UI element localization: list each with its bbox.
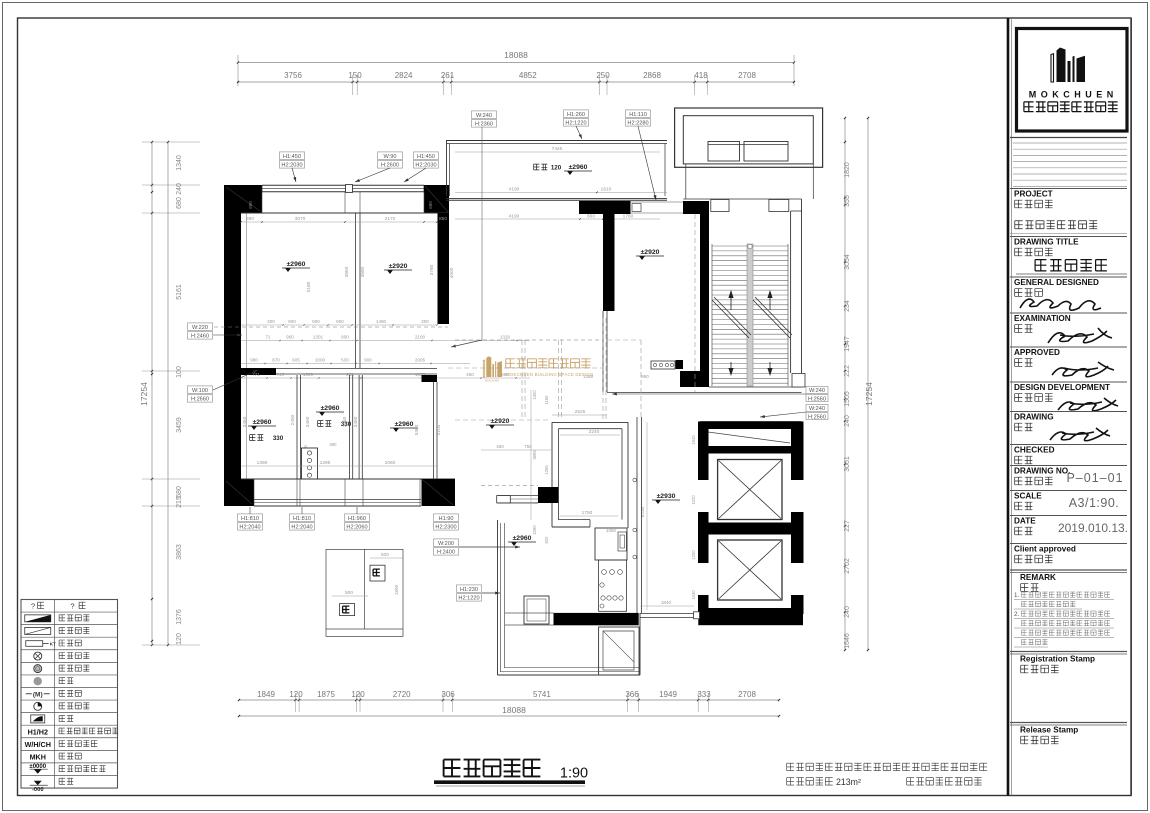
svg-text:2702: 2702 xyxy=(844,558,851,574)
svg-text:1505: 1505 xyxy=(844,391,851,407)
svg-text:PROJECT: PROJECT xyxy=(1014,190,1053,199)
svg-text:H1:110: H1:110 xyxy=(629,112,647,118)
svg-text:GENERAL DESIGNED: GENERAL DESIGNED xyxy=(1014,278,1099,287)
svg-text:1320: 1320 xyxy=(500,335,511,340)
svg-text:71: 71 xyxy=(265,335,271,340)
svg-text:234: 234 xyxy=(844,300,851,312)
svg-text:2824: 2824 xyxy=(395,71,413,80)
svg-text:2450: 2450 xyxy=(290,414,296,425)
svg-text:240: 240 xyxy=(176,183,183,195)
svg-text:REMARK: REMARK xyxy=(1020,573,1056,582)
svg-text:±2930: ±2930 xyxy=(657,493,676,500)
svg-text:1.: 1. xyxy=(1014,592,1019,599)
svg-text:±2960: ±2960 xyxy=(569,164,588,171)
svg-text:1301: 1301 xyxy=(313,335,324,340)
svg-text:H1:810: H1:810 xyxy=(293,516,311,522)
svg-text:-000: -000 xyxy=(32,787,44,793)
svg-text:±2920: ±2920 xyxy=(389,263,408,270)
svg-text:1646: 1646 xyxy=(844,633,851,649)
svg-text:±2920: ±2920 xyxy=(641,249,660,256)
svg-text:H1:260: H1:260 xyxy=(567,112,585,118)
svg-text:18088: 18088 xyxy=(504,50,528,60)
svg-text:H:2360: H:2360 xyxy=(475,121,493,127)
svg-text:1750: 1750 xyxy=(582,510,593,516)
svg-text:120: 120 xyxy=(351,690,365,699)
svg-text:MOKCHUEN: MOKCHUEN xyxy=(485,380,499,383)
svg-text:H1:90: H1:90 xyxy=(439,516,454,522)
svg-text:850: 850 xyxy=(439,216,447,222)
svg-text:450: 450 xyxy=(466,372,474,377)
svg-text:900: 900 xyxy=(312,319,320,324)
svg-text:1820: 1820 xyxy=(844,162,851,178)
svg-text:250: 250 xyxy=(596,71,610,80)
svg-text:1949: 1949 xyxy=(659,690,677,699)
svg-text:H1:230: H1:230 xyxy=(460,587,478,593)
svg-text:3459: 3459 xyxy=(176,417,183,433)
svg-text:2005: 2005 xyxy=(415,358,426,363)
svg-text:±2960: ±2960 xyxy=(395,421,414,428)
svg-text:±2960: ±2960 xyxy=(287,261,306,268)
svg-text:222: 222 xyxy=(844,365,851,377)
svg-text:460: 460 xyxy=(496,444,504,449)
svg-text:2170: 2170 xyxy=(385,216,396,222)
svg-text:227: 227 xyxy=(844,520,851,532)
svg-text:3054: 3054 xyxy=(844,254,851,270)
svg-text:2868: 2868 xyxy=(643,71,661,80)
svg-text:H2:2060: H2:2060 xyxy=(346,524,367,530)
svg-text:150: 150 xyxy=(348,71,362,80)
svg-text:1340: 1340 xyxy=(176,155,183,171)
svg-text:DESIGN DEVELOPMENT: DESIGN DEVELOPMENT xyxy=(1014,383,1110,392)
svg-text:5360: 5360 xyxy=(414,424,420,435)
svg-text:1840: 1840 xyxy=(661,600,672,605)
svg-text:W:200: W:200 xyxy=(438,541,454,547)
svg-text:1376: 1376 xyxy=(176,609,183,625)
svg-text:H:2460: H:2460 xyxy=(191,333,209,339)
svg-text:120: 120 xyxy=(176,633,183,645)
svg-text:1300: 1300 xyxy=(532,390,537,400)
svg-text:CHECKED: CHECKED xyxy=(1014,446,1055,455)
svg-text:W:90: W:90 xyxy=(384,154,397,160)
svg-text:MOKCHUEN BUILDING SPACE DESIGN: MOKCHUEN BUILDING SPACE DESIGN xyxy=(506,372,593,377)
svg-text:±2960: ±2960 xyxy=(253,419,272,426)
svg-text:745: 745 xyxy=(276,372,284,377)
svg-text:Client approved: Client approved xyxy=(1014,545,1076,554)
svg-text:W:100: W:100 xyxy=(192,388,208,394)
svg-text:1030: 1030 xyxy=(691,590,696,600)
svg-text:680: 680 xyxy=(428,201,433,209)
svg-text:100: 100 xyxy=(176,366,183,378)
svg-text:2240: 2240 xyxy=(589,429,600,435)
svg-text:215: 215 xyxy=(176,496,183,508)
svg-text:120: 120 xyxy=(289,690,303,699)
svg-text:605: 605 xyxy=(292,358,300,363)
svg-text:1760: 1760 xyxy=(623,213,634,219)
svg-text:1020: 1020 xyxy=(691,495,696,505)
svg-text:240: 240 xyxy=(844,415,851,427)
svg-text:H2:2280: H2:2280 xyxy=(627,120,648,126)
svg-text:3460: 3460 xyxy=(342,416,348,427)
svg-text:A3/1:90.: A3/1:90. xyxy=(1069,496,1120,510)
svg-text:W:220: W:220 xyxy=(192,325,208,331)
svg-text:H:2560: H:2560 xyxy=(808,414,826,420)
svg-text:333: 333 xyxy=(697,690,711,699)
svg-text:MKH: MKH xyxy=(30,752,46,761)
svg-text:4190: 4190 xyxy=(509,213,520,219)
svg-text:H2:1220: H2:1220 xyxy=(565,120,586,126)
svg-text:H2:2040: H2:2040 xyxy=(291,524,312,530)
svg-text:W:240: W:240 xyxy=(809,388,825,394)
svg-text:H1:960: H1:960 xyxy=(348,516,366,522)
svg-text:1160: 1160 xyxy=(544,395,549,405)
svg-text:1947: 1947 xyxy=(844,336,851,352)
svg-text:530: 530 xyxy=(341,358,349,363)
svg-text:3680: 3680 xyxy=(360,266,366,277)
svg-text:2720: 2720 xyxy=(393,690,411,699)
svg-text:300: 300 xyxy=(421,319,429,324)
svg-text:H1:810: H1:810 xyxy=(241,516,259,522)
svg-text:900: 900 xyxy=(341,335,349,340)
svg-text:5161: 5161 xyxy=(176,284,183,300)
svg-text:3863: 3863 xyxy=(176,544,183,560)
svg-text:3895: 3895 xyxy=(532,450,537,460)
svg-text:SCALE: SCALE xyxy=(1014,492,1042,501)
svg-text:690: 690 xyxy=(246,216,254,222)
svg-text:240: 240 xyxy=(844,606,851,618)
svg-text:900: 900 xyxy=(286,335,294,340)
svg-text:1500: 1500 xyxy=(303,372,314,377)
svg-text:4000: 4000 xyxy=(449,267,455,278)
svg-text:1200: 1200 xyxy=(691,550,696,560)
svg-text:17254: 17254 xyxy=(864,382,874,406)
svg-text:660: 660 xyxy=(587,213,595,219)
svg-text:1600: 1600 xyxy=(394,584,399,595)
svg-text:H1:450: H1:450 xyxy=(417,154,435,160)
svg-text:1090: 1090 xyxy=(532,525,537,535)
svg-text:900: 900 xyxy=(288,319,296,324)
svg-text:H2:2030: H2:2030 xyxy=(281,162,302,168)
svg-text:P–01–01: P–01–01 xyxy=(1066,471,1123,485)
svg-text:1295: 1295 xyxy=(320,460,331,466)
svg-text:H2:2040: H2:2040 xyxy=(239,524,260,530)
svg-text:W:240: W:240 xyxy=(476,113,492,119)
svg-text:KT: KT xyxy=(50,641,56,646)
svg-text:3756: 3756 xyxy=(284,71,302,80)
svg-text:5180: 5180 xyxy=(306,281,312,292)
svg-text:1390: 1390 xyxy=(257,460,268,466)
svg-text:500: 500 xyxy=(381,552,389,558)
svg-text:H2:2300: H2:2300 xyxy=(435,524,456,530)
svg-text:1875: 1875 xyxy=(317,690,335,699)
svg-text:H:2560: H:2560 xyxy=(808,396,826,402)
svg-text:2525: 2525 xyxy=(575,409,586,415)
svg-text:500: 500 xyxy=(345,590,353,596)
svg-text:1080: 1080 xyxy=(606,528,617,533)
svg-text:1265: 1265 xyxy=(544,465,549,475)
svg-text:355: 355 xyxy=(844,195,851,207)
svg-text:261: 261 xyxy=(441,71,455,80)
svg-text:3460: 3460 xyxy=(353,416,359,427)
svg-text:3460: 3460 xyxy=(305,416,311,427)
svg-text:3070: 3070 xyxy=(295,216,306,222)
svg-text:590: 590 xyxy=(330,442,338,447)
svg-text:870: 870 xyxy=(272,358,280,363)
svg-text:900: 900 xyxy=(336,319,344,324)
svg-text:213m²: 213m² xyxy=(836,777,861,787)
svg-text:1610: 1610 xyxy=(601,187,612,193)
svg-text:W/H/CH: W/H/CH xyxy=(25,740,51,749)
svg-text:Registration Stamp: Registration Stamp xyxy=(1020,655,1095,664)
svg-text:W:240: W:240 xyxy=(809,406,825,412)
svg-text:EXAMINATION: EXAMINATION xyxy=(1014,314,1071,323)
svg-text:1849: 1849 xyxy=(257,690,275,699)
svg-text:980: 980 xyxy=(250,358,258,363)
svg-text:?: ? xyxy=(70,601,74,610)
svg-text:Release Stamp: Release Stamp xyxy=(1020,726,1078,735)
svg-text:1940: 1940 xyxy=(691,435,696,445)
svg-text:DATE: DATE xyxy=(1014,517,1036,526)
svg-text:H1/H2: H1/H2 xyxy=(28,727,48,736)
svg-text:3780: 3780 xyxy=(429,264,435,275)
svg-text:820: 820 xyxy=(544,536,549,544)
svg-text:H1:450: H1:450 xyxy=(283,154,301,160)
svg-text:17254: 17254 xyxy=(139,382,149,406)
svg-text:±2920: ±2920 xyxy=(491,418,510,425)
svg-text:418: 418 xyxy=(694,71,708,80)
svg-text:3460: 3460 xyxy=(242,416,248,427)
svg-text:±2960: ±2960 xyxy=(321,405,340,412)
svg-text:H:2400: H:2400 xyxy=(437,549,455,555)
svg-text:2.: 2. xyxy=(1014,611,1019,618)
svg-text:18088: 18088 xyxy=(502,705,526,715)
svg-text:DRAWING TITLE: DRAWING TITLE xyxy=(1014,238,1079,247)
svg-text:H2:2030: H2:2030 xyxy=(415,162,436,168)
svg-text:DRAWING NO.: DRAWING NO. xyxy=(1014,467,1070,476)
svg-text:680: 680 xyxy=(176,197,183,209)
svg-text:H:2600: H:2600 xyxy=(381,162,399,168)
svg-text:4105: 4105 xyxy=(436,424,442,435)
svg-text:H:2660: H:2660 xyxy=(191,396,209,402)
svg-text:2708: 2708 xyxy=(738,71,756,80)
svg-text:±2960: ±2960 xyxy=(513,535,532,542)
svg-text:330: 330 xyxy=(273,435,284,442)
svg-text:4190: 4190 xyxy=(509,187,520,193)
svg-text:1000: 1000 xyxy=(315,358,326,363)
svg-text:2019.010.13.: 2019.010.13. xyxy=(1058,521,1128,535)
svg-text:M O K C H U E N: M O K C H U E N xyxy=(1029,90,1115,100)
svg-text:5741: 5741 xyxy=(533,690,551,699)
svg-text:DRAWING: DRAWING xyxy=(1014,413,1054,422)
svg-text:3660: 3660 xyxy=(344,266,350,277)
svg-text:2708: 2708 xyxy=(738,690,756,699)
svg-text:300: 300 xyxy=(267,319,275,324)
svg-text:APPROVED: APPROVED xyxy=(1014,348,1060,357)
svg-text:900: 900 xyxy=(364,358,372,363)
svg-text:950: 950 xyxy=(641,374,649,379)
svg-text:120: 120 xyxy=(551,165,562,172)
svg-text:H2:1220: H2:1220 xyxy=(458,595,479,601)
svg-text:680: 680 xyxy=(176,486,183,498)
svg-text:2100: 2100 xyxy=(415,335,426,340)
svg-text:?: ? xyxy=(31,601,35,610)
svg-text:3061: 3061 xyxy=(844,456,851,472)
svg-text:(M): (M) xyxy=(33,691,43,698)
svg-text:366: 366 xyxy=(625,690,639,699)
svg-text:4852: 4852 xyxy=(519,71,537,80)
svg-text:771: 771 xyxy=(252,372,260,377)
svg-text:1490: 1490 xyxy=(376,319,387,324)
svg-text:680: 680 xyxy=(248,201,253,209)
svg-text:306: 306 xyxy=(441,690,455,699)
svg-text:7445: 7445 xyxy=(552,146,563,152)
svg-text:1:90: 1:90 xyxy=(560,766,588,782)
svg-text:6230: 6230 xyxy=(640,506,646,517)
svg-text:2060: 2060 xyxy=(385,460,396,466)
